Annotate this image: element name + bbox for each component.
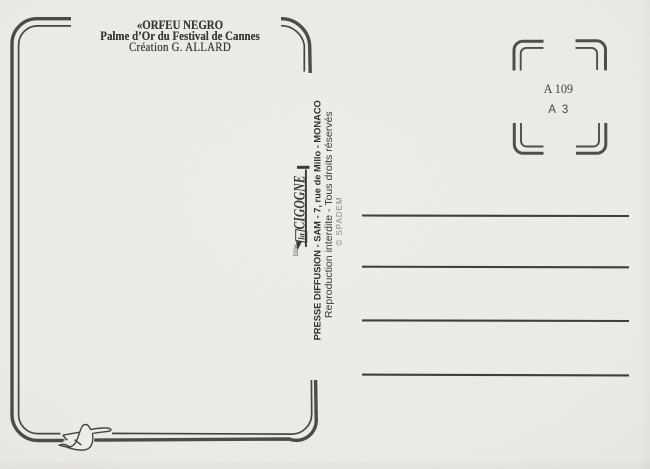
svg-text:© SPADEM: © SPADEM bbox=[335, 196, 344, 245]
svg-text:PRESSE DIFFUSION - SAM - 7, ru: PRESSE DIFFUSION - SAM - 7, rue de Millo… bbox=[312, 100, 322, 340]
svg-text:Reproduction interdite - Tous: Reproduction interdite - Tous droits rés… bbox=[323, 111, 335, 318]
svg-text:Editions: Editions bbox=[292, 244, 300, 256]
